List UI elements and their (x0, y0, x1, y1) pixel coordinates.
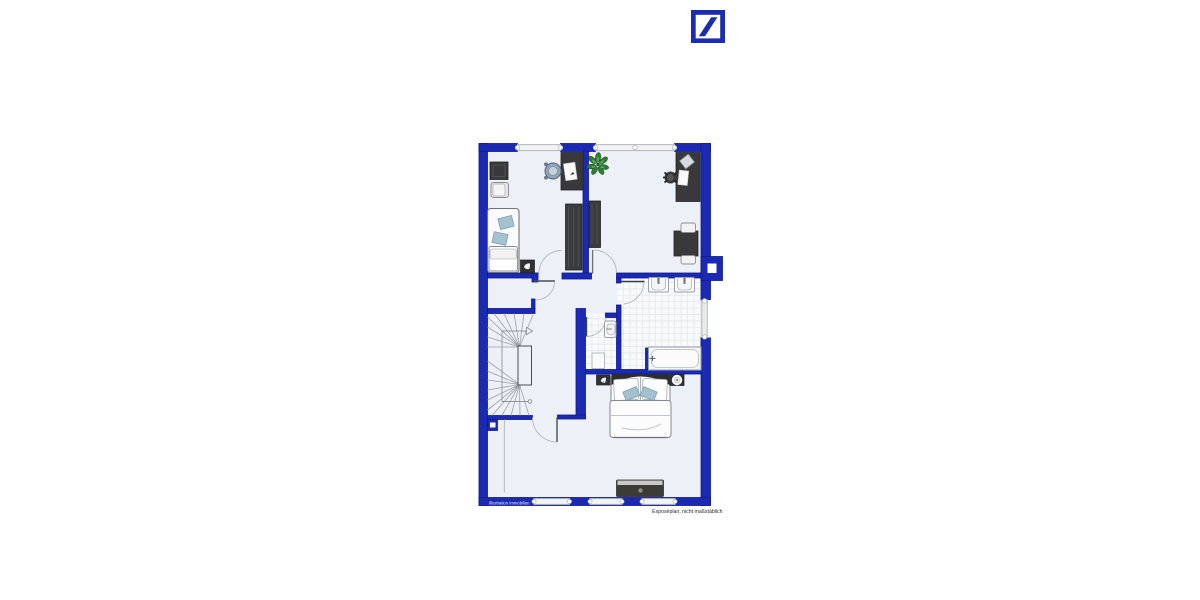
svg-text:Exposéplan, nicht maßstäblich: Exposéplan, nicht maßstäblich (652, 509, 722, 515)
svg-text:Illustration Immobilien: Illustration Immobilien (489, 500, 530, 505)
